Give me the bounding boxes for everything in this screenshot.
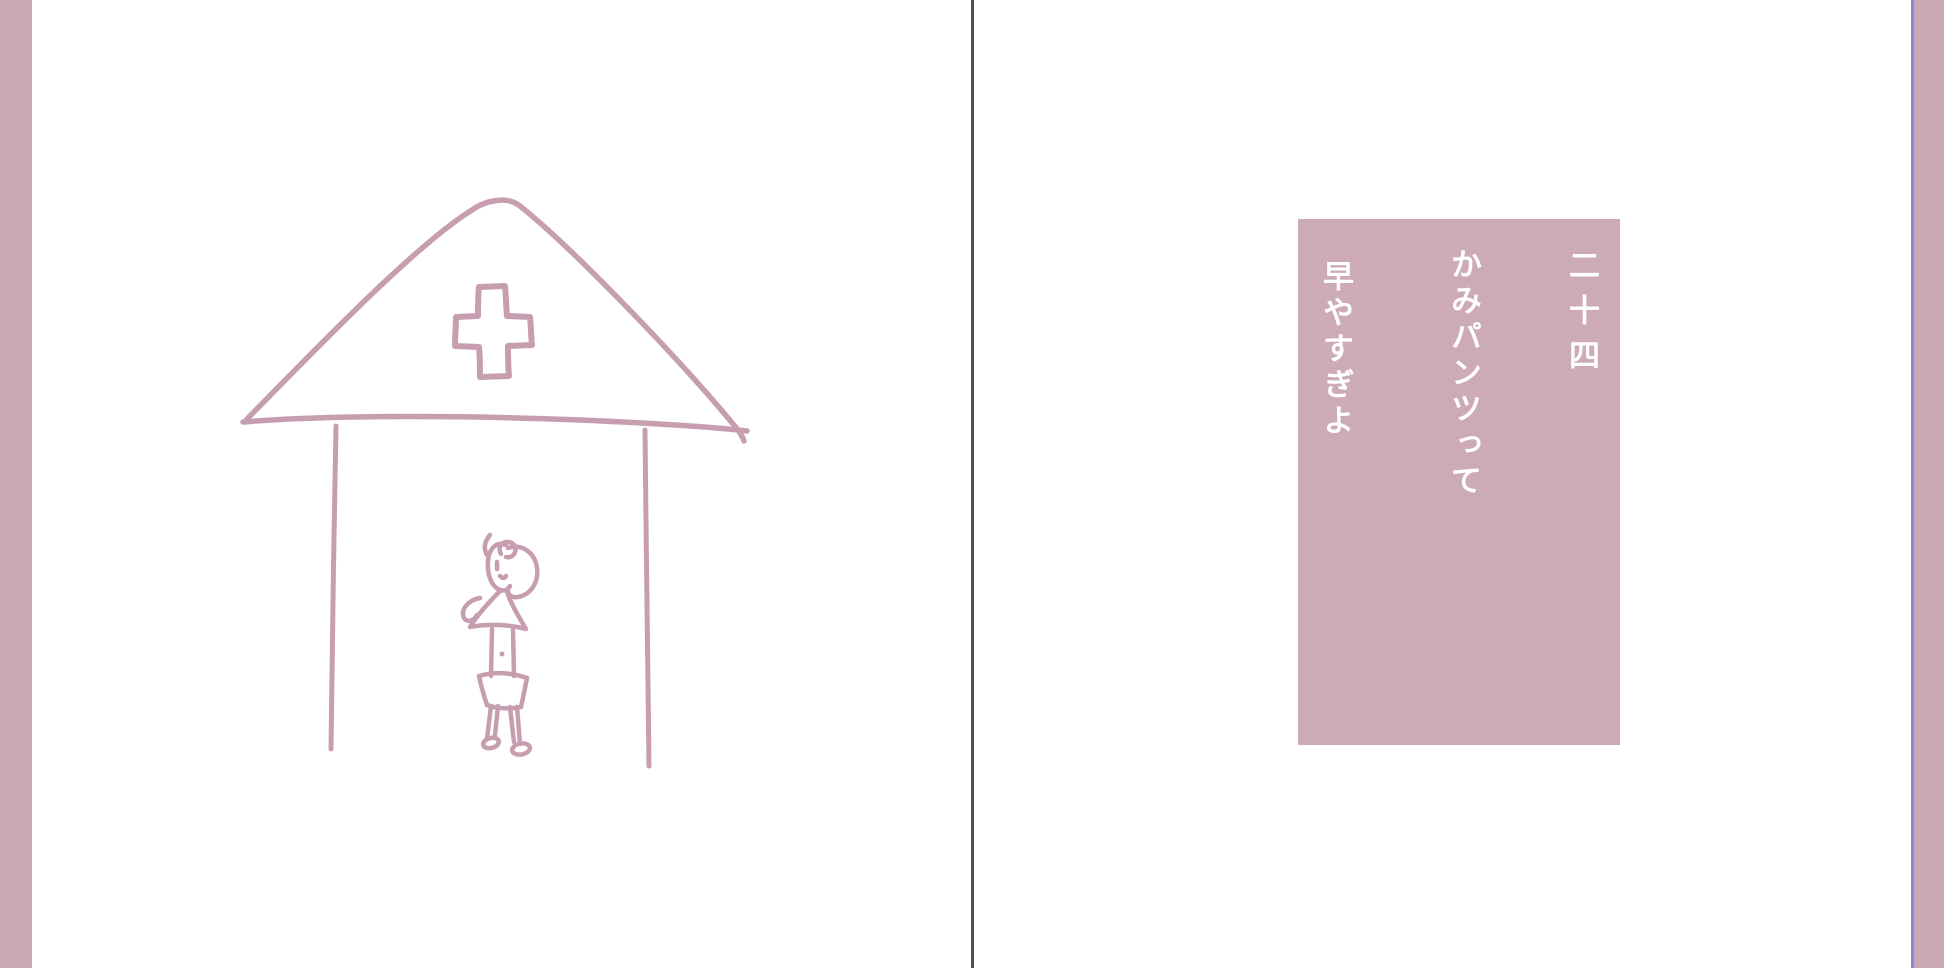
- roof-baseline: [243, 417, 747, 432]
- roof-outline: [247, 200, 744, 441]
- right-foot: [511, 742, 531, 756]
- grandma-figure-drawing: [463, 535, 537, 756]
- roof-drawing: [243, 200, 747, 441]
- ebook-reader-spread: 二十四 かみパンツって 早やすぎよ: [0, 0, 1944, 968]
- right-page-edge-strip[interactable]: [1911, 0, 1944, 968]
- chapter-number: 二十四: [1564, 249, 1597, 384]
- mouth-mark: [500, 576, 506, 578]
- right-page[interactable]: 二十四 かみパンツって 早やすぎよ: [974, 0, 1911, 968]
- cross-icon: [455, 286, 532, 377]
- left-leg-outer: [487, 706, 491, 739]
- torso-right-line: [513, 630, 514, 676]
- left-foot: [482, 736, 500, 750]
- right-leg-inner: [510, 707, 514, 742]
- left-leg-inner: [495, 706, 498, 735]
- verse-line-1: かみパンツって: [1446, 248, 1479, 500]
- pants-outline: [479, 673, 527, 708]
- house-with-cross-illustration: [0, 0, 972, 968]
- left-wall-line: [331, 426, 336, 749]
- left-page[interactable]: [32, 0, 971, 968]
- navel-dot: [500, 652, 505, 657]
- torso-left-line: [491, 629, 492, 676]
- right-wall-line: [645, 430, 649, 766]
- verse-box: 二十四 かみパンツって 早やすぎよ: [1298, 219, 1620, 745]
- arm-loop: [463, 598, 480, 621]
- verse-line-2: 早やすぎよ: [1318, 260, 1351, 440]
- right-leg-outer: [517, 707, 520, 744]
